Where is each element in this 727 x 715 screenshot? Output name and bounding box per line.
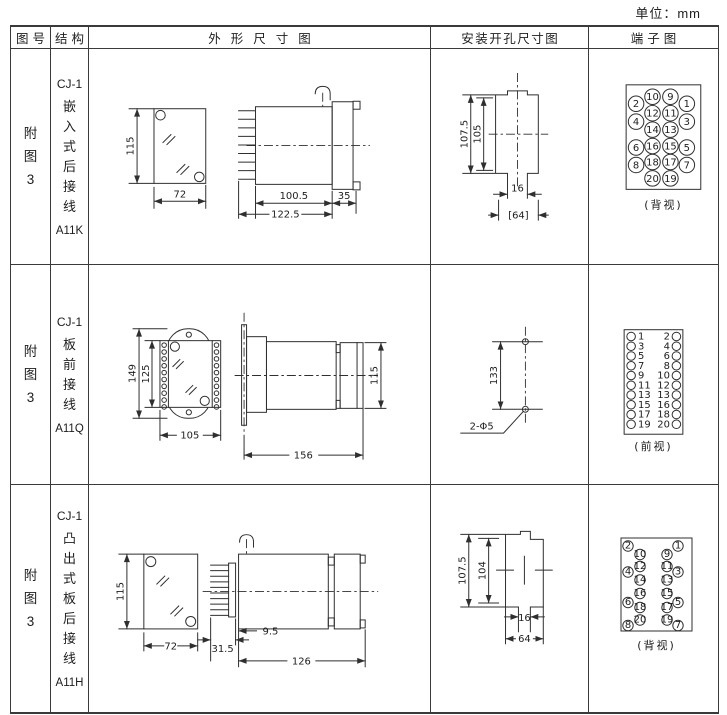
figure-cell-row3: 附图3 xyxy=(11,485,51,712)
figure-cell-row1: 附图3 xyxy=(11,49,51,265)
terminal-number: 13 xyxy=(664,125,677,136)
dim-front-width: 72 xyxy=(174,189,187,200)
terminal-number: 16 xyxy=(646,141,659,152)
structure-cell-row1: CJ-1 嵌入式后接线 A11K xyxy=(51,49,89,265)
dim-front-height: 115 xyxy=(115,582,126,601)
terminal-circle xyxy=(672,391,681,400)
side-view: 9.5 31.5 126 xyxy=(198,535,378,668)
terminal-number: 2 xyxy=(633,99,639,110)
terminal-number: 7 xyxy=(675,620,681,631)
front-view: 149 125 105 xyxy=(128,329,221,442)
terminal-number: 11 xyxy=(664,109,677,120)
terminal-number: 18 xyxy=(634,602,647,613)
terminal-circle xyxy=(627,381,636,390)
front-view: 115 72 xyxy=(126,109,206,209)
side-view: 100.5 35 122.5 xyxy=(239,86,370,220)
figure-number: 附图3 xyxy=(22,340,39,409)
dim-inner-height: 104 xyxy=(478,561,489,580)
header-figure: 图号 xyxy=(11,27,51,49)
terminal-circle xyxy=(672,361,681,370)
header-terminal: 端子图 xyxy=(589,27,718,49)
terminal-number: 18 xyxy=(646,157,659,168)
terminal-caption: (背视) xyxy=(644,197,682,211)
dim-total-depth: 156 xyxy=(294,451,313,462)
dim-span: [64] xyxy=(508,211,528,222)
terminal-circle xyxy=(627,342,636,351)
structure-label: 板前接线 xyxy=(61,335,78,415)
dim-front-height: 115 xyxy=(369,366,380,385)
terminal-number: 20 xyxy=(634,614,647,625)
center-marks xyxy=(497,556,553,584)
terminal-number: 1 xyxy=(675,540,681,551)
terminal-number: 13 xyxy=(661,574,674,585)
mounting-cell-row2: 133 2-Φ5 xyxy=(431,265,589,485)
terminal-number: 20 xyxy=(646,174,659,185)
structure-cell-row2: CJ-1 板前接线 A11Q xyxy=(51,265,89,485)
outline-cell-row3: 115 72 9.5 xyxy=(89,485,431,712)
mounting-drawing-row2: 133 2-Φ5 xyxy=(431,265,588,484)
terminal-number: 19 xyxy=(664,174,677,185)
header-structure: 结构 xyxy=(51,27,89,49)
terminal-pins xyxy=(239,111,256,179)
terminal-circle xyxy=(627,400,636,409)
mounting-drawing-row3: 107.5 104 16 64 xyxy=(431,485,588,712)
model-label: CJ-1 xyxy=(57,509,82,523)
terminal-number: 10 xyxy=(646,92,659,103)
terminal-circle xyxy=(672,352,681,361)
terminal-circle xyxy=(627,371,636,380)
terminal-number: 5 xyxy=(675,597,681,608)
model-label: CJ-1 xyxy=(57,315,82,329)
terminal-circle xyxy=(627,332,636,341)
terminal-number: 1 xyxy=(684,99,690,110)
terminal-number: 4 xyxy=(633,117,639,128)
terminal-circle xyxy=(627,361,636,370)
terminal-number: 9 xyxy=(667,92,673,103)
terminal-circle xyxy=(627,420,636,429)
terminal-circle xyxy=(627,391,636,400)
terminal-circle xyxy=(627,410,636,419)
terminal-number: 4 xyxy=(625,566,631,577)
header-outline-label: 外形尺寸图 xyxy=(208,28,321,47)
terminal-number: 10 xyxy=(634,549,647,560)
terminal-number: 12 xyxy=(634,561,647,572)
terminal-number: 15 xyxy=(664,141,677,152)
figure-number: 附图3 xyxy=(22,564,39,633)
dim-inner-height: 105 xyxy=(473,125,484,144)
dim-total-depth: 122.5 xyxy=(271,210,299,221)
terminal-circle xyxy=(627,352,636,361)
terminal-circle xyxy=(672,342,681,351)
model-code: A11Q xyxy=(55,423,84,435)
terminal-number: 20 xyxy=(657,419,670,430)
figure-number: 附图3 xyxy=(22,122,39,191)
mounting-cell-row3: 107.5 104 16 64 xyxy=(431,485,589,712)
terminal-number: 5 xyxy=(684,143,690,154)
terminal-number: 6 xyxy=(633,143,639,154)
dim-pin-depth: 31.5 xyxy=(212,644,234,655)
header-figure-label: 图号 xyxy=(16,28,49,47)
outline-drawing-row2: 149 125 105 156 xyxy=(89,265,430,484)
terminal-number: 11 xyxy=(661,561,674,572)
header-terminal-label: 端子图 xyxy=(631,28,681,47)
terminal-circle xyxy=(672,332,681,341)
terminal-circle xyxy=(672,381,681,390)
spec-table: 图号 结构 外形尺寸图 安装开孔尺寸图 端子图 附图3 CJ-1 嵌入式后接线 … xyxy=(10,25,719,714)
terminal-caption: (前视) xyxy=(634,439,672,453)
dim-total-depth: 126 xyxy=(292,656,311,667)
dim-slot-width: 16 xyxy=(518,613,531,624)
dim-body-height: 125 xyxy=(141,365,152,384)
terminal-number: 3 xyxy=(675,566,681,577)
model-label: CJ-1 xyxy=(57,77,82,91)
dim-front-depth: 35 xyxy=(338,191,351,202)
dim-outer-height: 107.5 xyxy=(459,120,470,148)
terminal-number: 8 xyxy=(625,620,631,631)
structure-label: 嵌入式后接线 xyxy=(61,97,78,217)
terminal-number: 17 xyxy=(664,157,677,168)
structure-label: 凸出式板后接线 xyxy=(61,529,78,669)
terminal-number: 6 xyxy=(625,597,631,608)
dim-hole-spacing: 133 xyxy=(489,366,500,385)
dim-slot-width: 16 xyxy=(511,183,524,194)
terminal-circle xyxy=(672,371,681,380)
dim-panel-offset: 9.5 xyxy=(262,626,278,637)
units-label: 单位：mm xyxy=(635,3,701,22)
terminal-cell-row1: (背视) 2468101214161820911131517191357 xyxy=(589,49,718,265)
terminal-number: 19 xyxy=(661,614,674,625)
terminal-cell-row3: (背视) 2468101214161820911131517191357 xyxy=(589,485,718,712)
terminal-diagram-row3: (背视) 2468101214161820911131517191357 xyxy=(589,485,718,712)
dim-span: 64 xyxy=(518,634,531,645)
header-mounting-label: 安装开孔尺寸图 xyxy=(461,28,559,47)
side-view: 156 115 xyxy=(235,313,386,462)
terminal-caption: (背视) xyxy=(637,638,676,652)
front-view: 115 72 xyxy=(115,554,197,652)
terminal-diagram-row2: (前视) 1357911131517192468101213161820 xyxy=(589,265,718,484)
terminal-circle xyxy=(672,420,681,429)
header-structure-label: 结构 xyxy=(55,28,88,47)
structure-cell-row3: CJ-1 凸出式板后接线 A11H xyxy=(51,485,89,712)
terminal-number: 9 xyxy=(664,549,670,560)
model-code: A11H xyxy=(56,677,84,689)
terminal-number: 19 xyxy=(638,419,651,430)
dim-body-width: 105 xyxy=(180,431,199,442)
terminal-number: 14 xyxy=(634,574,647,585)
outline-drawing-row3: 115 72 9.5 xyxy=(89,485,430,712)
dim-body-depth: 100.5 xyxy=(280,191,308,202)
terminal-number: 7 xyxy=(684,160,690,171)
terminal-pins xyxy=(211,565,229,615)
figure-cell-row2: 附图3 xyxy=(11,265,51,485)
mounting-cell-row1: 107.5 105 16 [64] xyxy=(431,49,589,265)
hatch-mark xyxy=(171,606,183,616)
outline-drawing-row1: 115 72 100.5 35 122.5 xyxy=(89,49,430,264)
outline-cell-row1: 115 72 100.5 35 122.5 xyxy=(89,49,431,265)
terminal-number: 17 xyxy=(661,602,674,613)
header-outline: 外形尺寸图 xyxy=(89,27,431,49)
terminal-number: 12 xyxy=(646,109,659,120)
hole-spec-label: 2-Φ5 xyxy=(470,422,494,433)
dim-front-height: 115 xyxy=(126,137,137,156)
terminal-diagram-row1: (背视) 2468101214161820911131517191357 xyxy=(589,49,718,264)
mounting-drawing-row1: 107.5 105 16 [64] xyxy=(431,49,588,264)
terminal-number: 14 xyxy=(646,125,659,136)
terminal-number: 15 xyxy=(661,588,674,599)
terminal-number: 8 xyxy=(633,160,639,171)
terminal-box xyxy=(621,538,692,631)
dim-plate-height: 149 xyxy=(128,364,139,383)
hatch-mark xyxy=(163,135,175,145)
outline-cell-row2: 149 125 105 156 xyxy=(89,265,431,485)
dim-front-width: 72 xyxy=(164,641,177,652)
terminal-circle xyxy=(672,400,681,409)
terminal-cell-row2: (前视) 1357911131517192468101213161820 xyxy=(589,265,718,485)
terminal-circle xyxy=(672,410,681,419)
hatch-mark xyxy=(177,164,189,174)
terminal-number: 3 xyxy=(684,117,690,128)
hatch-mark xyxy=(157,576,169,586)
header-mounting: 安装开孔尺寸图 xyxy=(431,27,589,49)
terminal-number: 16 xyxy=(634,588,647,599)
dim-outer-height: 107.5 xyxy=(457,556,468,584)
terminal-number: 2 xyxy=(625,540,631,551)
model-code: A11K xyxy=(56,225,83,237)
